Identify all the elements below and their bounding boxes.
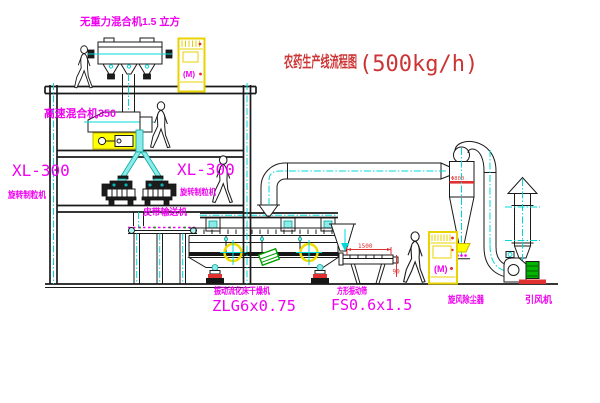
label-sieve-model: FS0.6x1.5: [331, 296, 412, 314]
label-belt-conveyor: 皮带输送机: [142, 206, 187, 217]
sieve-width-dim: 1500: [358, 243, 373, 250]
fluid-bed-dryer: [189, 205, 338, 284]
vibrating-sieve: 1500 90: [339, 243, 400, 284]
label-sieve-name: 方形振动筛: [337, 285, 367, 296]
gravity-free-mixer: [88, 38, 172, 112]
label-gravity-mixer: 无重力混合机1.5 立方: [79, 15, 180, 28]
belt-conveyor: [128, 212, 197, 284]
cabinet-top-motor-mark: (M): [183, 70, 195, 79]
label-granulator-name-right: 旋转制粒机: [179, 187, 216, 197]
label-cyclone: 旋风除尘器: [447, 294, 484, 306]
label-dryer-name: 振动流化床干燥机: [214, 285, 270, 296]
spring-mounts: [206, 218, 335, 231]
label-granulator-name-left: 旋转制粒机: [7, 189, 46, 200]
cabinet-bottom-motor-mark: (M): [434, 264, 448, 274]
rotary-granulator-left: [102, 179, 136, 206]
label-granulator-model-left: XL-300: [12, 161, 70, 180]
worker-second-floor: [151, 102, 170, 148]
label-granulator-model-right: XL-300: [177, 160, 235, 179]
control-cabinet-bottom: (M): [429, 232, 457, 284]
rotary-granulator-right: [142, 179, 176, 206]
diagram-title-capacity: (500kg/h): [359, 52, 478, 77]
diagram-canvas: (M): [0, 0, 600, 403]
label-fan: 引风机: [525, 294, 552, 306]
conveyor-legs: [134, 234, 186, 284]
cyclone-diameter-dim: Φ800: [451, 176, 464, 182]
sieve-height-dim: 90: [393, 269, 401, 276]
dryer-discharge-funnel: [329, 224, 356, 251]
worker-by-sieve: [404, 232, 425, 282]
exhaust-duct: [261, 163, 451, 205]
label-high-speed-mixer: 高速混合机350: [44, 106, 116, 120]
diagram-title: 农药生产线流程图: [283, 52, 357, 71]
control-cabinet-top: (M): [179, 39, 205, 92]
label-dryer-model: ZLG6x0.75: [212, 297, 296, 315]
